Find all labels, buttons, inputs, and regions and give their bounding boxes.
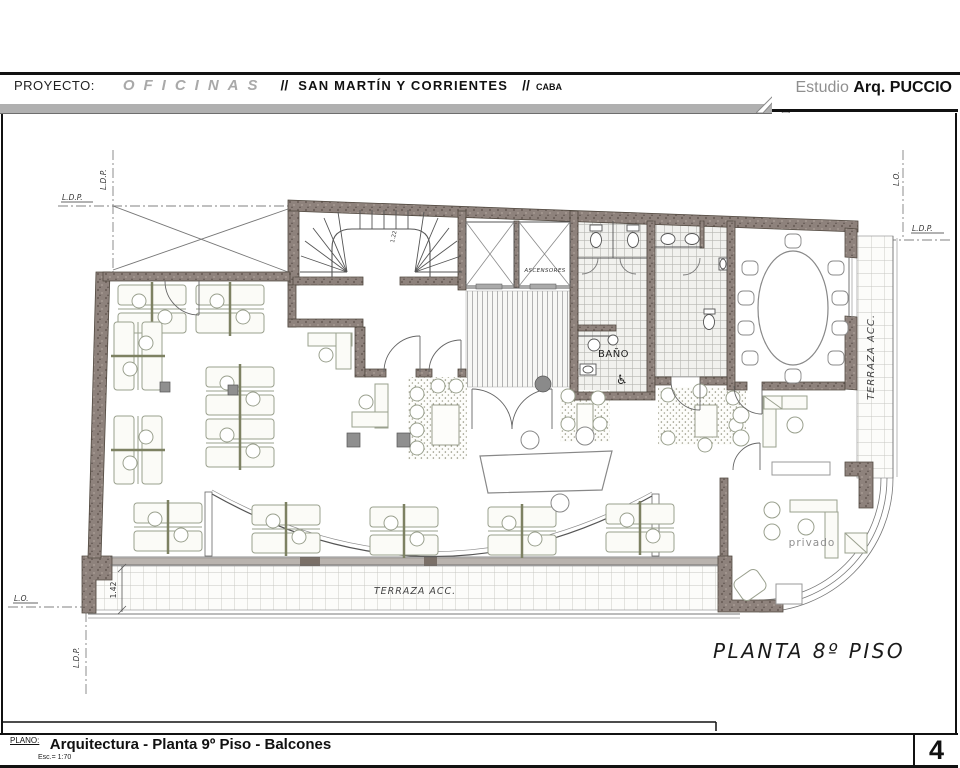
project-type: OFICINAS (123, 77, 267, 94)
sheet-title: Arquitectura - Planta 9º Piso - Balcones (50, 736, 331, 753)
project-location: SAN MARTÍN Y CORRIENTES (298, 78, 508, 93)
ldp-label-top-left-v: L.D.P. (99, 169, 108, 190)
stair-dim-text: 1.22 (390, 230, 398, 243)
ascensores-label: ASCENSORES (523, 268, 565, 274)
private-offices (732, 396, 867, 604)
meeting-room (738, 234, 848, 383)
separator-2: // (522, 77, 530, 93)
terraza-bottom-label: TERRAZA ACC. (374, 586, 456, 597)
title-block: PLANO: Arquitectura - Planta 9º Piso - B… (0, 733, 958, 768)
proyecto-label: PROYECTO: (14, 78, 95, 93)
ldp-label-top-left-h: L.D.P. (62, 193, 83, 202)
project-city: CABA (536, 82, 562, 92)
sheet-number-box: 4 (913, 735, 958, 765)
elevator-lobby-floor (466, 291, 570, 387)
studio-name: Arq. PUCCIO (853, 79, 952, 96)
studio-prefix: Estudio (796, 79, 849, 96)
header-band: PROYECTO: OFICINAS // SAN MARTÍN Y CORRI… (0, 72, 960, 113)
title-block-left: PLANO: Arquitectura - Planta 9º Piso - B… (10, 736, 331, 754)
ldp-label-bottom-left: L.D.P. (72, 647, 81, 668)
terraza-right-label: TERRAZA ACC. (866, 314, 877, 400)
lo-label-top-right: L.O. (892, 171, 901, 186)
sheet-number: 4 (929, 737, 944, 764)
separator-1: // (281, 77, 289, 93)
privado-label: privado (789, 537, 836, 549)
plano-label: PLANO: (10, 736, 39, 745)
drawing-sheet: PROYECTO: OFICINAS // SAN MARTÍN Y CORRI… (0, 0, 960, 768)
studio-block: Estudio Arq. PUCCIO (772, 79, 958, 112)
floor-plan: L.D.P. L.D.P. L.O. L.D.P. L.O. L.D.P. TE… (0, 110, 960, 732)
reception-desk (480, 427, 612, 512)
bano-label: BAÑO (598, 347, 629, 360)
lo-label-bottom-left: L.O. (14, 594, 29, 603)
wheelchair-icon: ♿ (616, 373, 628, 388)
dimension-terrace-text: 1.42 (109, 581, 118, 598)
plan-caption: PLANTA 8º PISO (713, 639, 905, 663)
scale-label: Esc.= 1:70 (38, 754, 71, 761)
stair: 1.22 (300, 210, 462, 277)
ldp-label-top-right: L.D.P. (912, 224, 933, 233)
